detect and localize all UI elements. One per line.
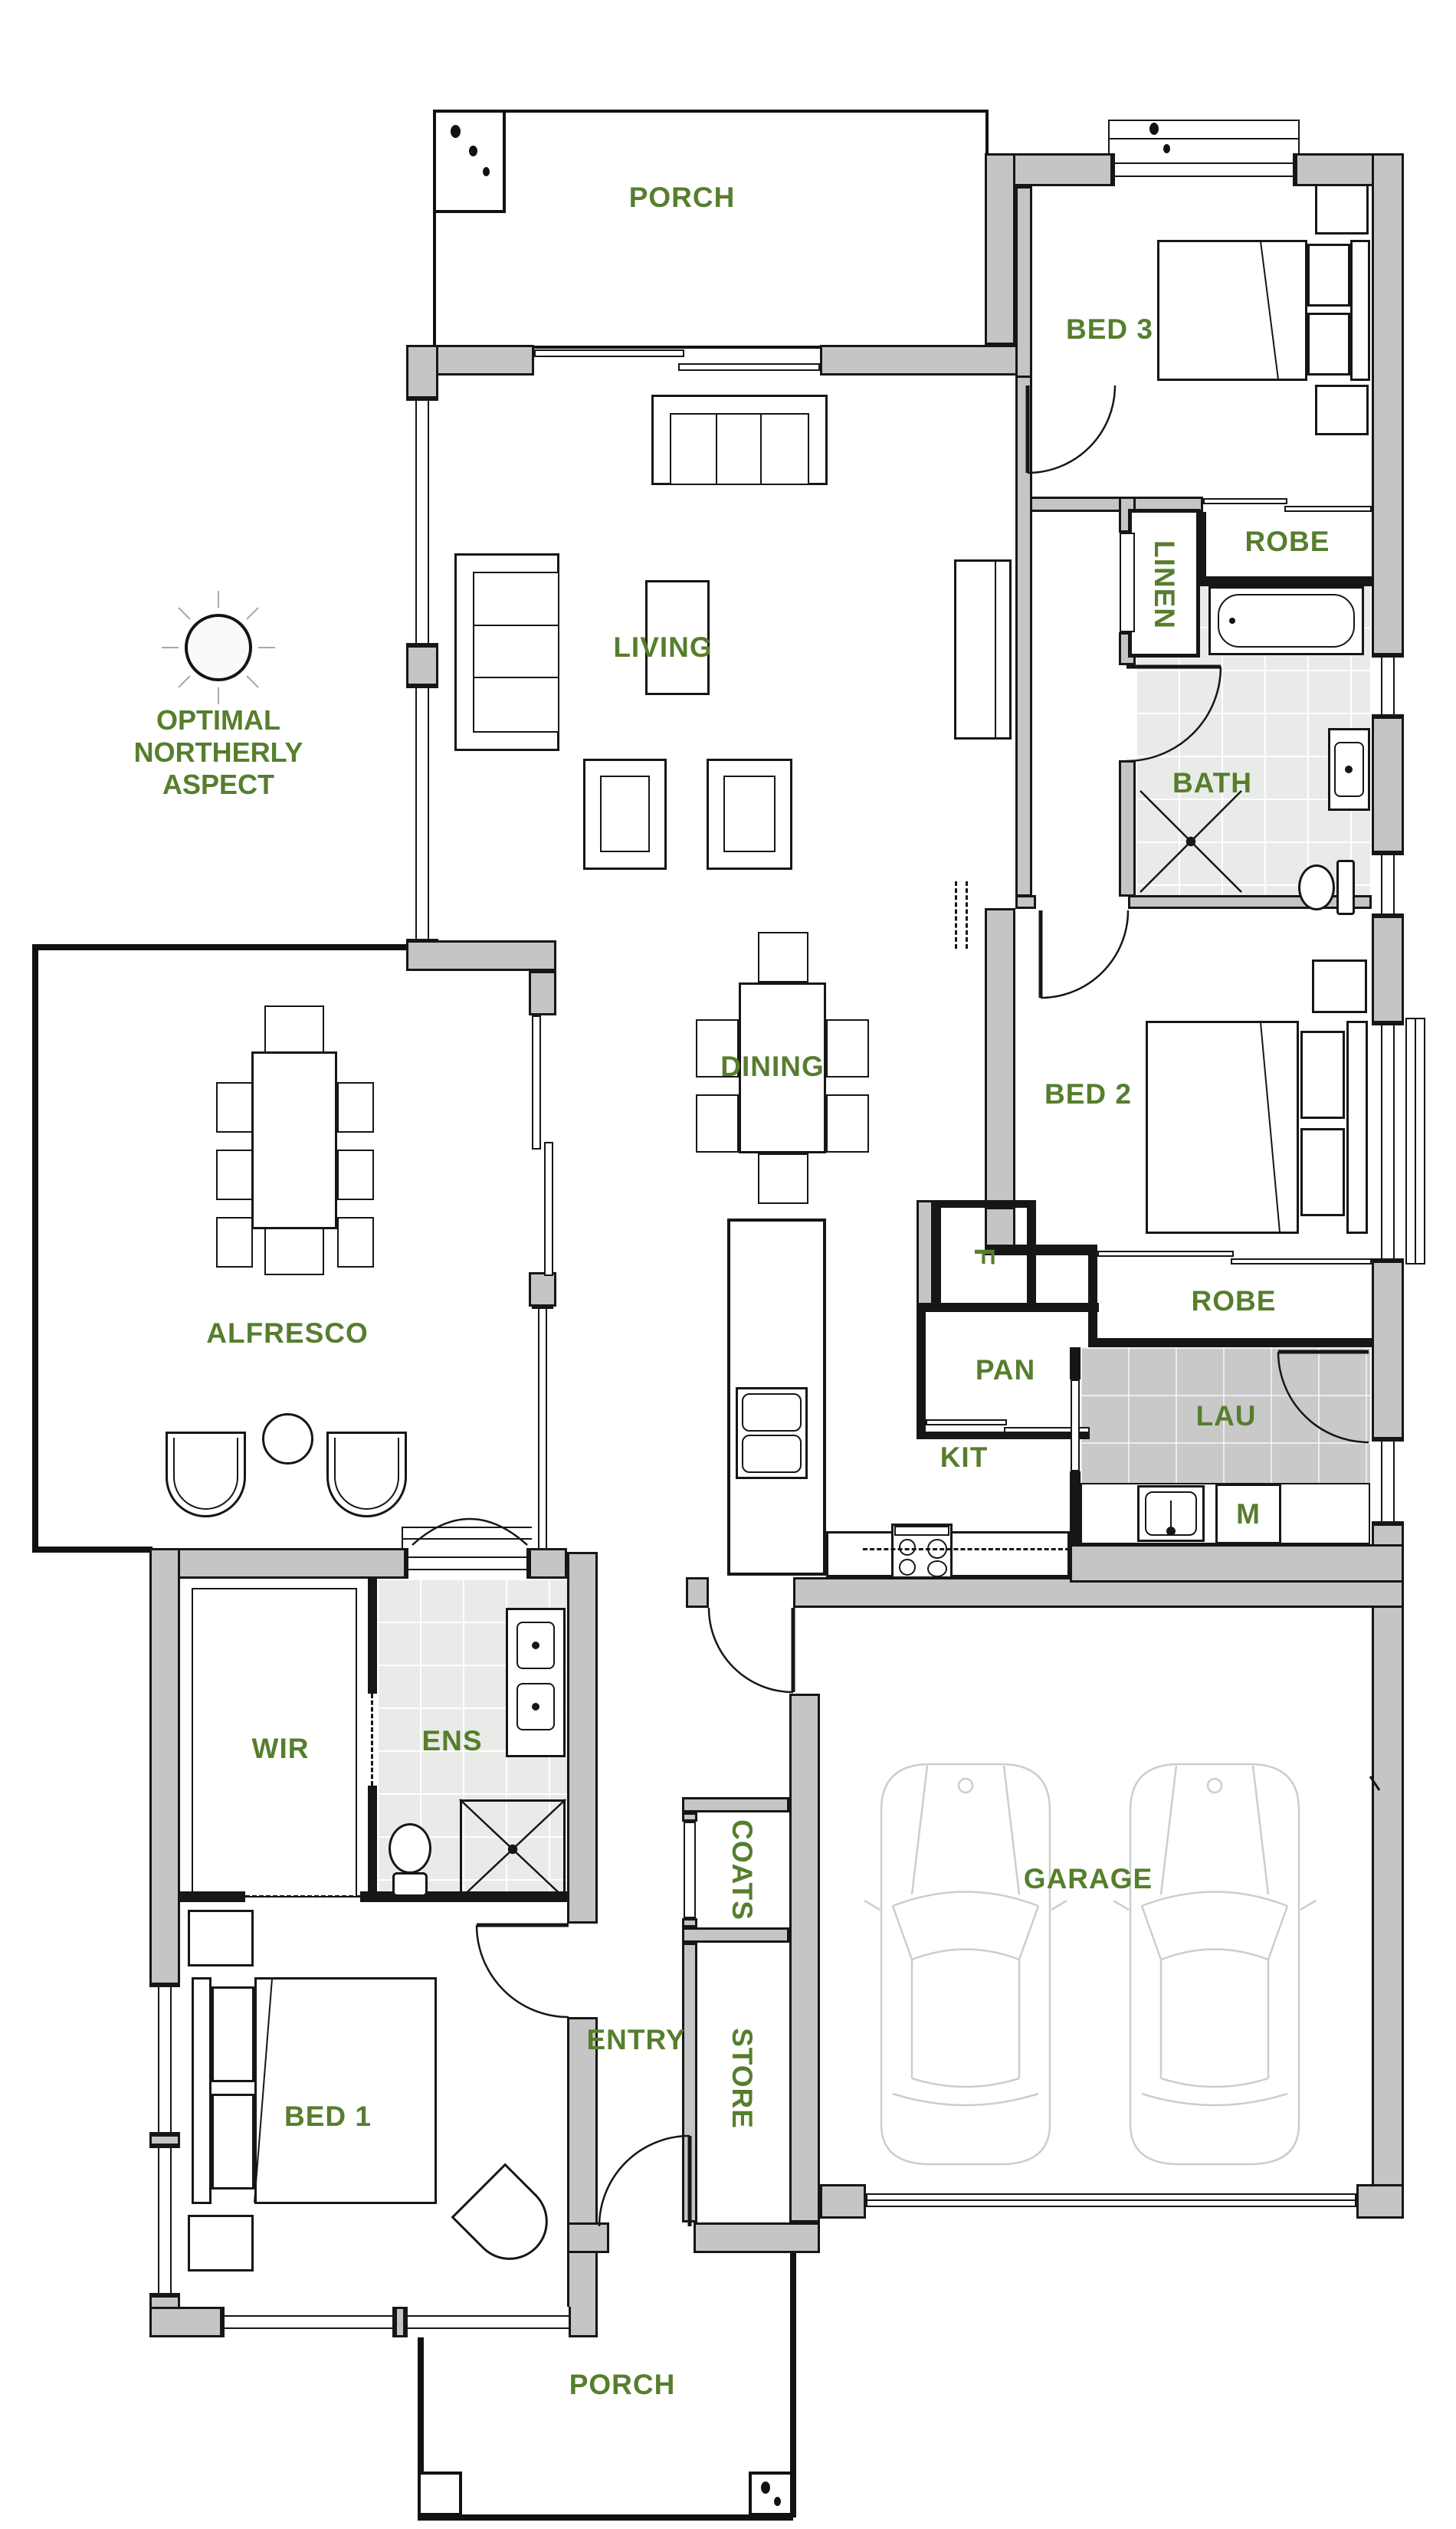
sink-bowl [742,1435,802,1473]
porch-bottom-label: PORCH [569,2369,676,2401]
ens-toilet-tank [392,1872,428,1897]
lau-label: LAU [1195,1400,1256,1432]
dining-chair [696,1094,739,1153]
wall [1015,186,1032,385]
window [406,686,438,941]
wall [406,940,556,971]
wall [567,2222,609,2253]
outdoor-chair [337,1217,374,1268]
bed1-mattress [254,1977,437,2204]
wall [682,1797,789,1812]
washer-label: M [1236,1498,1261,1530]
bed2-label: BED 2 [1044,1078,1132,1110]
garage-access-door-arc [709,1608,793,1692]
tv-unit [954,559,1012,740]
outdoor-table [251,1051,337,1229]
wall [1128,895,1372,909]
bath-toilet-bowl [1298,864,1335,910]
window [532,1307,553,1550]
bed3-pillow [1307,313,1350,376]
sliding-door-panel [532,1015,541,1150]
outdoor-chair [264,1228,324,1275]
wall [149,1548,406,1579]
porch-post [433,110,506,213]
sink-bowl [742,1393,802,1432]
burner [899,1539,916,1556]
wall [1015,895,1036,909]
wall [1372,916,1404,1023]
wall [406,645,438,686]
sliding-door-panel [678,363,820,371]
wall [406,345,438,399]
wall [820,2184,866,2219]
linen-door [1120,533,1135,632]
wall [682,1927,789,1943]
laundry-tub-bowl [1145,1491,1197,1536]
bed2-pillow [1300,1128,1345,1216]
bedside-table [1312,959,1367,1013]
wall [985,1245,1097,1255]
porch-top-outline [433,110,989,349]
robe-bed2-label: ROBE [1192,1285,1277,1317]
window [405,2307,571,2337]
wall [1070,1471,1081,1544]
sun-icon [162,591,275,704]
bath-basin [1334,742,1364,797]
window-sill [1405,1018,1425,1264]
armchair-seat [723,776,776,852]
wall [149,2307,222,2337]
dining-chair [826,1019,869,1078]
garage-panel-door [866,2193,1356,2207]
wall [1088,1253,1097,1347]
plant-glyph [774,2497,781,2506]
wall [529,971,556,1015]
window [149,2146,180,2295]
sliding-door-panel [544,1142,553,1276]
wall [917,1303,1099,1312]
burner [927,1560,947,1577]
wir-ens-opening [371,1694,373,1786]
robe-sliding-door [1284,506,1372,512]
porch-post [418,2472,462,2516]
alfresco-outline-top [32,944,409,950]
bedside-table [1315,184,1369,235]
bath-toilet-tank [1336,860,1355,915]
wall [985,153,1015,345]
fridge-label: F [968,1248,1000,1266]
bed1-door-arc [477,1925,569,2017]
wall [567,2017,598,2337]
wall [917,1303,926,1433]
plant-glyph [1163,144,1170,153]
porch-post [749,2472,793,2516]
window [1372,1023,1404,1261]
burner [899,1559,916,1576]
outdoor-chair [337,1150,374,1200]
linen-label: LINEN [1148,540,1180,629]
ens-basin [516,1622,555,1669]
wall [1200,512,1206,581]
lounge-chair-inner [173,1438,238,1510]
bedside-table [1315,385,1369,435]
bed2-pillow [1300,1031,1345,1119]
plant-glyph [761,2481,770,2494]
window-sill [402,1527,533,1550]
wall [529,1548,567,1579]
wall [820,345,1031,376]
bed3-door-arc [1028,385,1115,473]
window [1372,853,1404,916]
wall [1356,2184,1404,2219]
bed2-mattress [1146,1021,1299,1234]
dining-chair [826,1094,869,1153]
wall [686,1577,709,1608]
floor-plan-page: { "plan_title": "Single storey house flo… [0,0,1456,2529]
annotation-line: OPTIMAL [134,704,303,736]
wir-bed1-opening [245,1895,360,1898]
bed3-headboard [1350,240,1370,381]
bath-label: BATH [1172,767,1252,799]
bed2-door-arc [1041,910,1128,998]
pan-sliding-door [926,1419,1007,1425]
bulkhead-dashed [955,881,957,949]
front-door-arc [599,2136,690,2226]
wall [567,1552,598,1924]
wall [694,2222,820,2253]
sliding-door-panel [534,349,684,357]
wall [1088,1338,1372,1347]
ens-toilet-bowl [389,1823,431,1874]
wall [1070,1544,1404,1583]
dining-chair [758,932,808,982]
wall [149,1548,180,1985]
plant-glyph [469,146,477,156]
wall [529,1272,556,1307]
dining-label: DINING [720,1051,825,1083]
wall [682,1943,697,2222]
wall [395,2307,405,2337]
window [406,399,438,645]
bath-drain [1229,618,1235,624]
wall [1119,760,1136,897]
window [1113,153,1295,186]
wall [1070,1347,1081,1379]
window [406,1548,529,1579]
ens-label: ENS [421,1725,482,1757]
wall [985,908,1015,1207]
sofa-large-seat [670,413,809,485]
wall [1372,1261,1404,1439]
wall [933,1200,1031,1208]
annotation-line: ASPECT [134,769,303,801]
living-label: LIVING [613,631,712,664]
wall [789,1694,820,2222]
annotation-line: NORTHERLY [134,736,303,769]
lounge-chair-inner [334,1438,399,1510]
wir-label: WIR [252,1733,310,1765]
wall [368,1786,377,1901]
wall [1372,1524,1404,2219]
cooktop-panel [894,1526,949,1536]
outdoor-chair [337,1082,374,1133]
dining-chair [758,1153,808,1204]
bulkhead-dashed [966,881,968,949]
outdoor-chair [216,1082,253,1133]
bed1-label: BED 1 [284,2101,372,2133]
wall [933,1200,941,1312]
garage-label: GARAGE [1024,1863,1153,1895]
kit-label: KIT [940,1442,989,1474]
window [1372,1439,1404,1524]
bedside-table [188,2215,254,2272]
store-label: STORE [726,2028,758,2129]
robe-bed3-label: ROBE [1245,526,1330,558]
sofa-small-seat [473,572,559,733]
bed3-pillow [1307,244,1350,307]
plant-glyph [451,125,461,138]
bathtub-inner [1218,594,1355,648]
ens-basin [516,1683,555,1730]
bed2-headboard [1346,1021,1368,1234]
bed3-mattress [1157,240,1307,381]
porch-top-label: PORCH [629,182,736,214]
northerly-aspect-annotation: OPTIMAL NORTHERLY ASPECT [134,704,303,801]
window-sill [1108,120,1300,155]
robe2-sliding-door [1231,1258,1372,1264]
side-table-round [262,1413,313,1465]
bedside-table [188,1910,254,1966]
coats-label: COATS [726,1819,758,1921]
bed1-headboard [192,1977,212,2204]
bed1-pillow [212,1986,254,2082]
entry-label: ENTRY [586,2024,685,2056]
window [149,1985,180,2134]
armchair-seat [600,776,650,852]
alfresco-label: ALFRESCO [206,1317,369,1350]
car-icon [864,1764,1316,2164]
robe-sliding-door [1203,498,1287,504]
wall [917,1200,933,1312]
bed1-pillow [212,2094,254,2190]
coats-door [684,1822,696,1918]
window [222,2307,395,2337]
wall [1372,717,1404,853]
outdoor-chair [264,1005,324,1053]
bed3-label: BED 3 [1066,313,1153,346]
alfresco-outline-bottom [32,1547,152,1553]
robe2-sliding-door [1097,1251,1234,1257]
plant-glyph [1149,123,1159,135]
wall [1200,576,1372,586]
wall [368,1579,377,1694]
wall [149,2134,180,2146]
porch-bottom-outline-bottom [418,2514,793,2521]
outdoor-chair [216,1150,253,1200]
alfresco-outline-left [32,944,38,1550]
plant-glyph [483,167,490,176]
wall [682,1918,697,1927]
wall [682,1812,697,1822]
pan-label: PAN [976,1354,1035,1386]
wall [1372,153,1404,655]
ens-shower [460,1799,566,1901]
wall [1027,1200,1036,1312]
overhead-cupboard-dashed [863,1548,1070,1550]
window [1372,655,1404,717]
wall [1015,376,1032,897]
outdoor-chair [216,1217,253,1268]
lau-cavity-door [1071,1379,1080,1471]
bedroom-chair [451,2163,563,2275]
